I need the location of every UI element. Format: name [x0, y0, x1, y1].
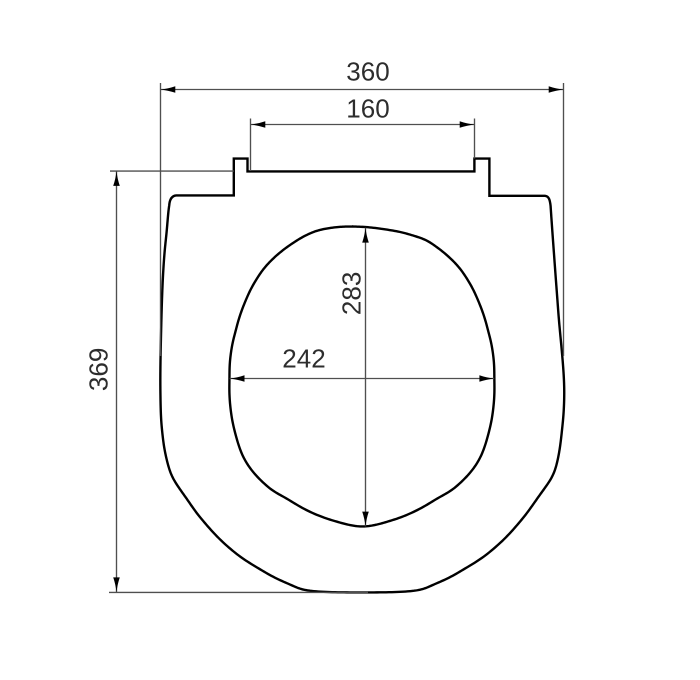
svg-text:160: 160: [346, 94, 389, 124]
svg-text:369: 369: [84, 348, 114, 391]
svg-text:283: 283: [337, 272, 367, 315]
svg-text:360: 360: [346, 57, 389, 87]
svg-text:242: 242: [282, 344, 325, 374]
